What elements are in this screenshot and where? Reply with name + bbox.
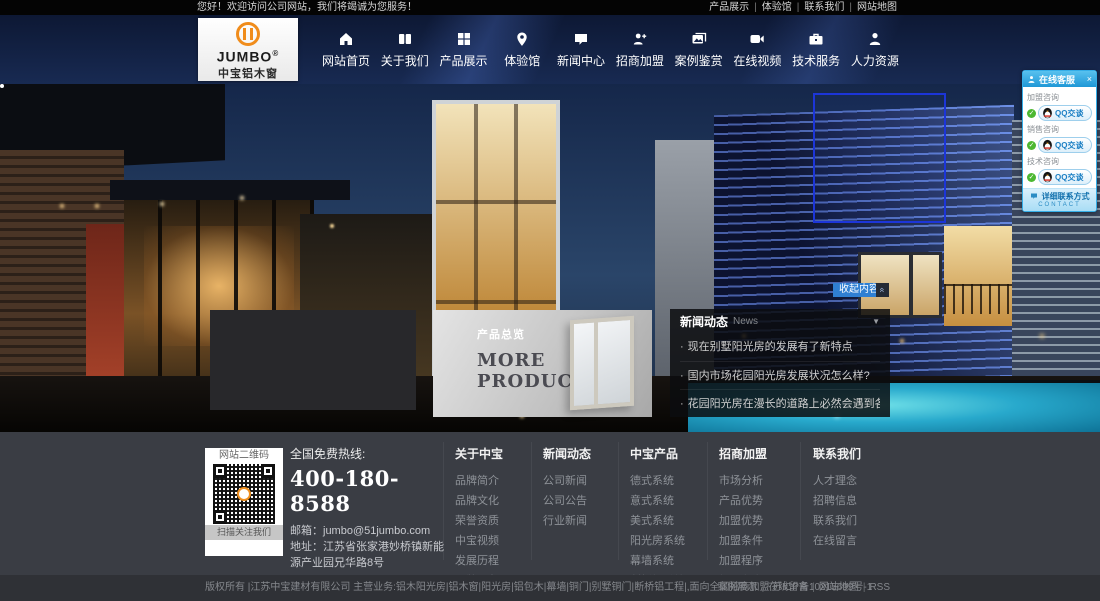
news-subtitle: News	[733, 316, 872, 327]
bottombar-links: 案例展示|在线留言|网站地图|RSS	[718, 575, 890, 601]
service-row: ✓ QQ交谈	[1027, 137, 1092, 153]
nav-item-products[interactable]: 产品展示	[436, 15, 492, 84]
logo[interactable]: JUMBO® 中宝铝木窗	[198, 18, 298, 81]
nav-item-cases[interactable]: 案例鉴赏	[671, 15, 727, 84]
footer-link[interactable]: 阳光房系统	[630, 531, 685, 551]
bottom-link-sitemap[interactable]: 网站地图	[819, 582, 859, 593]
news-header: 新闻动态 News ▼	[670, 309, 890, 333]
news-item-text: 花园阳光房在漫长的道路上必然会遇到各种挑战	[688, 398, 880, 410]
user-plus-icon	[632, 31, 648, 47]
registered-mark: ®	[272, 49, 279, 58]
footer-link[interactable]: 联系我们	[813, 511, 861, 531]
divider: |	[762, 582, 765, 593]
service-panel-header: 在线客服 ×	[1023, 71, 1096, 87]
footer-link[interactable]: 荣誉资质	[455, 511, 503, 531]
hero-lights	[0, 84, 4, 88]
address-row: 地址：江苏省张家港妙桥镇新能源产业园兄华路8号	[290, 539, 452, 571]
footer-col-contact: 联系我们 人才理念 招聘信息 联系我们 在线留言	[813, 445, 861, 551]
column-divider	[800, 442, 801, 560]
topbar-link-sitemap[interactable]: 网站地图	[857, 2, 897, 13]
nav-label: 招商加盟	[616, 52, 664, 69]
person-icon	[1027, 75, 1036, 84]
topbar-link-experience[interactable]: 体验馆	[762, 2, 792, 13]
chat-icon	[573, 31, 589, 47]
footer-link[interactable]: 美式系统	[630, 511, 685, 531]
online-service-panel: 在线客服 × 加盟咨询 ✓ QQ交谈 销售咨询 ✓ QQ交谈 技术咨询	[1022, 70, 1097, 212]
nav-item-experience[interactable]: 体验馆	[494, 15, 550, 84]
hero-banner: 产品总览 MORE PRODUCTS 收起内容 « 新闻动态 News ▼ ·现…	[0, 84, 1100, 432]
qq-penguin-icon	[1042, 171, 1053, 183]
hotline-label: 全国免费热线:	[290, 445, 452, 462]
footer-col-title: 新闻动态	[543, 445, 591, 462]
news-item[interactable]: ·现在别墅阳光房的发展有了新特点	[680, 333, 880, 361]
footer-link[interactable]: 中宝视频	[455, 531, 503, 551]
qr-caption: 扫描关注我们	[205, 525, 283, 540]
bottom-link-message[interactable]: 在线留言	[768, 582, 808, 593]
footer-col-products: 中宝产品 德式系统 意式系统 美式系统 阳光房系统 幕墙系统 断桥铝系统	[630, 445, 685, 591]
service-panel-body: 加盟咨询 ✓ QQ交谈 销售咨询 ✓ QQ交谈 技术咨询 ✓	[1023, 87, 1096, 188]
news-item-text: 现在别墅阳光房的发展有了新特点	[688, 341, 853, 353]
gallery-icon	[691, 31, 707, 47]
qq-chat-button[interactable]: QQ交谈	[1038, 137, 1092, 153]
online-status-icon: ✓	[1027, 173, 1036, 182]
logo-emblem-icon	[236, 22, 260, 46]
bottom-link-rss[interactable]: RSS	[869, 582, 890, 593]
footer-col-title: 联系我们	[813, 445, 861, 462]
footer-link[interactable]: 品牌文化	[455, 491, 503, 511]
nav-item-about[interactable]: 关于我们	[377, 15, 433, 84]
footer-col-title: 关于中宝	[455, 445, 503, 462]
divider: |	[797, 2, 800, 13]
topbar-links: 产品展示|体验馆|联系我们|网站地图	[709, 0, 897, 15]
topbar-link-products[interactable]: 产品展示	[709, 2, 749, 13]
footer-link[interactable]: 市场分析	[719, 471, 774, 491]
footer-link[interactable]: 加盟条件	[719, 531, 774, 551]
product-dark-panel[interactable]	[210, 310, 416, 410]
qq-chat-button[interactable]: QQ交谈	[1038, 169, 1092, 185]
nav-item-video[interactable]: 在线视频	[729, 15, 785, 84]
news-item-text: 国内市场花园阳光房发展状况怎么样?	[688, 370, 870, 382]
window-illustration	[570, 316, 634, 410]
nav-label: 网站首页	[322, 52, 370, 69]
footer-link[interactable]: 在线留言	[813, 531, 861, 551]
footer-link[interactable]: 幕墙系统	[630, 551, 685, 571]
nav-item-service[interactable]: 技术服务	[788, 15, 844, 84]
news-title: 新闻动态	[680, 313, 728, 330]
column-divider	[618, 442, 619, 560]
nav-item-join[interactable]: 招商加盟	[612, 15, 668, 84]
qr-code	[213, 464, 275, 524]
qq-chat-label: QQ交谈	[1055, 172, 1083, 183]
divider: |	[863, 582, 866, 593]
speech-bubble-icon	[1029, 192, 1039, 200]
footer-col-title: 中宝产品	[630, 445, 685, 462]
topbar-link-contact[interactable]: 联系我们	[804, 2, 844, 13]
online-status-icon: ✓	[1027, 109, 1036, 118]
qq-chat-button[interactable]: QQ交谈	[1038, 105, 1092, 121]
footer-link[interactable]: 品牌简介	[455, 471, 503, 491]
qr-card: 网站二维码 扫描关注我们	[205, 448, 283, 556]
close-icon[interactable]: ×	[1087, 71, 1092, 87]
collapse-top-button[interactable]: «	[876, 283, 889, 297]
chevrons-up-icon: «	[875, 287, 889, 292]
service-group-label: 加盟咨询	[1027, 92, 1092, 103]
nav-label: 体验馆	[504, 52, 540, 69]
footer: 网站二维码 扫描关注我们 全国免费热线: 400-180-8588 邮箱：jum…	[0, 432, 1100, 575]
footer-link[interactable]: 发展历程	[455, 551, 503, 571]
bullet: ·	[680, 370, 684, 382]
news-item[interactable]: ·国内市场花园阳光房发展状况怎么样?	[680, 361, 880, 389]
footer-link[interactable]: 产品优势	[719, 491, 774, 511]
online-status-icon: ✓	[1027, 141, 1036, 150]
service-group-label: 销售咨询	[1027, 124, 1092, 135]
topbar: 您好！欢迎访问公司网站，我们将竭诚为您服务！ 产品展示|体验馆|联系我们|网站地…	[0, 0, 1100, 15]
email-row: 邮箱：jumbo@51jumbo.com	[290, 523, 452, 539]
divider: |	[849, 2, 852, 13]
divider: |	[812, 582, 815, 593]
news-panel: 新闻动态 News ▼ ·现在别墅阳光房的发展有了新特点 ·国内市场花园阳光房发…	[670, 309, 890, 417]
service-row: ✓ QQ交谈	[1027, 105, 1092, 121]
main-nav: JUMBO® 中宝铝木窗 网站首页 关于我们 产品展示 体验馆 新闻中心	[0, 15, 1100, 84]
footer-col-title: 招商加盟	[719, 445, 774, 462]
nav-label: 在线视频	[733, 52, 781, 69]
nav-item-home[interactable]: 网站首页	[318, 15, 374, 84]
bullet: ·	[680, 398, 684, 410]
user-icon	[867, 31, 883, 47]
bottom-link-cases[interactable]: 案例展示	[718, 582, 758, 593]
contact-detail-sub: CONTACT	[1023, 202, 1096, 208]
page: 您好！欢迎访问公司网站，我们将竭诚为您服务！ 产品展示|体验馆|联系我们|网站地…	[0, 0, 1100, 601]
qr-logo-badge	[237, 487, 251, 501]
service-group-label: 技术咨询	[1027, 156, 1092, 167]
nav-menu: 网站首页 关于我们 产品展示 体验馆 新闻中心 招商加盟	[318, 15, 903, 84]
map-pin-icon	[514, 31, 530, 47]
footer-link[interactable]: 公司公告	[543, 491, 591, 511]
book-icon	[397, 31, 413, 47]
hotline-number: 400-180-8588	[290, 466, 452, 516]
qq-chat-label: QQ交谈	[1055, 108, 1083, 119]
footer-link[interactable]: 德式系统	[630, 471, 685, 491]
video-icon	[749, 31, 765, 47]
welcome-text: 您好！欢迎访问公司网站，我们将竭诚为您服务！	[197, 0, 417, 15]
bottombar: 版权所有 |江苏中宝建材有限公司 主营业务:铝木阳光房|铝木窗|阳光房|铝包木|…	[0, 575, 1100, 601]
highlight-selection-box	[813, 93, 946, 223]
nav-label: 案例鉴赏	[675, 52, 723, 69]
service-panel-title: 在线客服	[1039, 73, 1087, 86]
nav-label: 产品展示	[440, 52, 488, 69]
hero-porch-roof	[110, 180, 350, 200]
column-divider	[707, 442, 708, 560]
home-icon	[338, 31, 354, 47]
footer-link[interactable]: 意式系统	[630, 491, 685, 511]
contact-detail-button[interactable]: 详细联系方式 CONTACT	[1023, 188, 1096, 211]
bullet: ·	[680, 341, 684, 353]
briefcase-icon	[808, 31, 824, 47]
footer-link[interactable]: 加盟优势	[719, 511, 774, 531]
footer-col-about: 关于中宝 品牌简介 品牌文化 荣誉资质 中宝视频 发展历程 品牌形象	[455, 445, 503, 591]
nav-item-news[interactable]: 新闻中心	[553, 15, 609, 84]
logo-brand: JUMBO®	[198, 46, 298, 65]
qq-penguin-icon	[1042, 139, 1053, 151]
dropdown-arrow-icon[interactable]: ▼	[872, 317, 880, 326]
nav-label: 新闻中心	[557, 52, 605, 69]
nav-item-hr[interactable]: 人力资源	[847, 15, 903, 84]
nav-label: 技术服务	[792, 52, 840, 69]
footer-link[interactable]: 招聘信息	[813, 491, 861, 511]
nav-label: 关于我们	[381, 52, 429, 69]
footer-link[interactable]: 公司新闻	[543, 471, 591, 491]
column-divider	[443, 442, 444, 560]
footer-link[interactable]: 人才理念	[813, 471, 861, 491]
product-more-panel[interactable]: 产品总览 MORE PRODUCTS	[433, 310, 652, 417]
divider: |	[754, 2, 757, 13]
footer-link[interactable]: 行业新闻	[543, 511, 591, 531]
logo-subtitle: 中宝铝木窗	[198, 65, 298, 81]
hero-balcony	[944, 226, 1014, 326]
footer-link[interactable]: 加盟程序	[719, 551, 774, 571]
qq-penguin-icon	[1042, 107, 1053, 119]
email-value[interactable]: jumbo@51jumbo.com	[323, 525, 430, 537]
news-item[interactable]: ·花园阳光房在漫长的道路上必然会遇到各种挑战	[680, 389, 880, 417]
footer-col-news: 新闻动态 公司新闻 公司公告 行业新闻	[543, 445, 591, 531]
qr-title: 网站二维码	[205, 448, 283, 464]
contact-detail-row: 详细联系方式	[1023, 191, 1096, 202]
service-row: ✓ QQ交谈	[1027, 169, 1092, 185]
grid-icon	[456, 31, 472, 47]
qq-chat-label: QQ交谈	[1055, 140, 1083, 151]
column-divider	[531, 442, 532, 560]
nav-label: 人力资源	[851, 52, 899, 69]
